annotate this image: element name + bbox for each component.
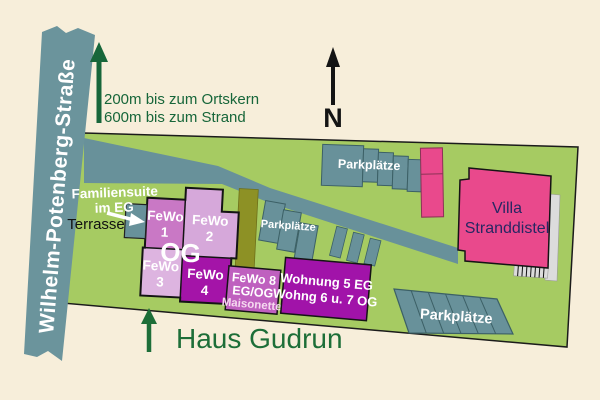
- fewo2-number: 2: [205, 229, 213, 244]
- site-title: Haus Gudrun: [176, 323, 343, 354]
- site-plan-canvas: Villa Stranddistel FeWo 1 FeWo 2 FeWo 3 …: [0, 0, 600, 400]
- villa-label-line2: Stranddistel: [465, 220, 550, 237]
- fewo4-label: FeWo: [187, 266, 224, 283]
- fewo1-label: FeWo: [147, 208, 184, 225]
- fewo4-number: 4: [201, 283, 210, 298]
- fewo2-label: FeWo: [192, 212, 229, 229]
- distance-note-line1: 200m bis zum Ortskern: [104, 91, 259, 108]
- site-plan: Villa Stranddistel FeWo 1 FeWo 2 FeWo 3 …: [0, 0, 600, 400]
- pink-outbuilding: [420, 148, 443, 217]
- parking-top-label: Parkplätze: [338, 157, 401, 173]
- distance-note-line2: 600m bis zum Strand: [104, 109, 246, 126]
- fewo3-number: 3: [156, 274, 165, 289]
- villa-label-line1: Villa: [492, 200, 522, 217]
- terrace-label: Terrasse: [67, 216, 125, 233]
- pink-outbuilding-body: [420, 148, 443, 217]
- parking-spot: [407, 159, 422, 191]
- villa-stranddistel: [458, 168, 551, 268]
- suite-label-line1: Familiensuite: [71, 183, 158, 201]
- floor-label-og: OG: [160, 236, 202, 268]
- compass-label: N: [323, 103, 343, 133]
- wohnung5-building: Wohnung 5 EG Wohng 6 u. 7 OG: [272, 257, 381, 322]
